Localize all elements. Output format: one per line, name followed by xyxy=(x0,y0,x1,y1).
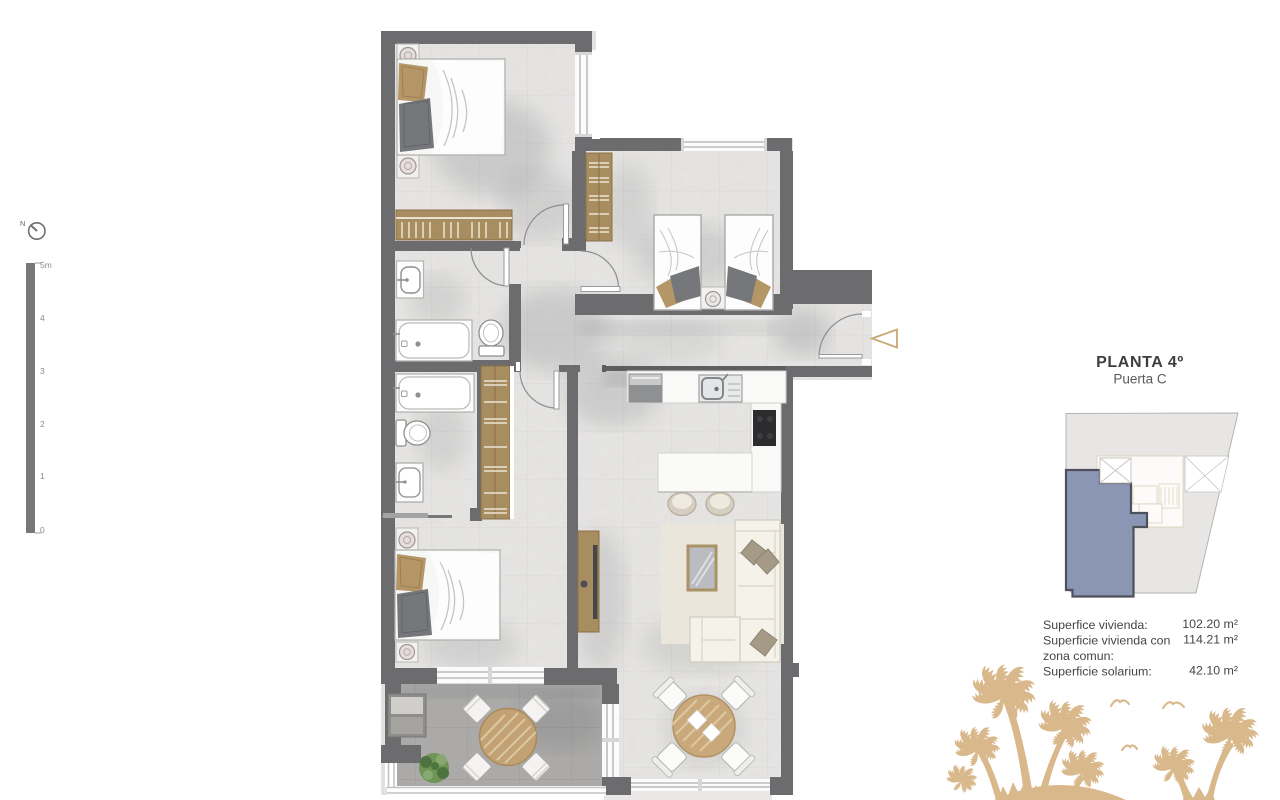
svg-text:3: 3 xyxy=(40,366,45,376)
svg-text:PLANTA 4º: PLANTA 4º xyxy=(1096,354,1184,371)
svg-text:Superficie vivienda con: Superficie vivienda con xyxy=(1043,634,1171,648)
svg-text:114.21 m²: 114.21 m² xyxy=(1183,633,1238,647)
svg-text:zona comun:: zona comun: xyxy=(1043,649,1114,663)
svg-text:Superficie solarium:: Superficie solarium: xyxy=(1043,665,1152,679)
svg-text:Puerta C: Puerta C xyxy=(1113,372,1167,387)
svg-text:Superfice vivienda:: Superfice vivienda: xyxy=(1043,618,1148,632)
svg-text:1: 1 xyxy=(40,471,45,481)
svg-text:4: 4 xyxy=(40,313,45,323)
svg-text:42.10 m²: 42.10 m² xyxy=(1189,664,1238,678)
svg-text:2: 2 xyxy=(40,419,45,429)
svg-text:102.20 m²: 102.20 m² xyxy=(1182,617,1238,631)
svg-text:5m: 5m xyxy=(40,260,52,270)
svg-text:N: N xyxy=(20,219,25,228)
svg-text:0: 0 xyxy=(40,525,45,535)
